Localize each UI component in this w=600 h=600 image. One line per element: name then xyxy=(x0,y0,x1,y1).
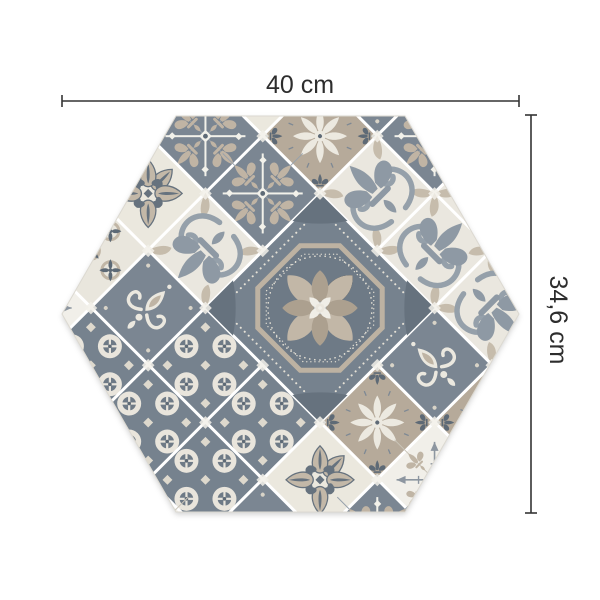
grout-corner-accent xyxy=(85,416,98,429)
grout-corner-accent xyxy=(371,15,384,28)
tile-motif-scroll xyxy=(377,536,493,600)
width-dimension: 40 cm xyxy=(62,71,519,107)
tile-motif-crossfleur xyxy=(584,171,600,331)
tile-motif-circles xyxy=(406,451,578,600)
grout-corner-accent xyxy=(428,531,441,544)
tile-motif-crossfleur xyxy=(355,0,515,102)
tile-motif-compass xyxy=(0,171,56,331)
grout-corner-accent xyxy=(27,244,40,257)
grout-corner-accent xyxy=(428,73,441,86)
height-label: 34,6 cm xyxy=(544,276,572,365)
grout-corner-accent xyxy=(485,473,498,486)
grout-corner-accent xyxy=(256,15,269,28)
tile-motif-quatrefoil xyxy=(144,533,266,600)
grout-corner-accent xyxy=(485,244,498,257)
grout-corner-accent xyxy=(199,531,212,544)
tile-motif-circles xyxy=(578,279,600,451)
grout-corner-accent xyxy=(199,73,212,86)
tile-motif-tulip xyxy=(538,355,600,491)
grout-corner-accent xyxy=(543,416,556,429)
tile-motif-compass xyxy=(469,400,600,560)
tile-motif-tulip xyxy=(309,0,445,32)
grout-corner-accent xyxy=(485,130,498,143)
tile-motif-quatrefoil xyxy=(259,533,381,600)
tile-motif-circles xyxy=(0,279,62,451)
tile-motif-rosette xyxy=(428,15,556,143)
height-dimension: 34,6 cm xyxy=(525,115,572,513)
grout-corner-accent xyxy=(371,588,384,600)
tile-motif-tulip xyxy=(0,125,102,261)
tile-motif-damask xyxy=(491,78,600,194)
grout-corner-accent xyxy=(314,531,327,544)
grout-corner-accent xyxy=(142,473,155,486)
grout-corner-accent xyxy=(27,359,40,372)
tile-motif-quatrefoil xyxy=(144,0,266,83)
tile-motif-rosette xyxy=(27,72,155,200)
grout-corner-accent xyxy=(142,130,155,143)
product-dimension-image: 40 cm 34,6 cm xyxy=(0,0,600,600)
tile-motif-quatrefoil xyxy=(545,132,600,254)
tile-motif-crossfleur xyxy=(183,572,343,600)
grout-corner-accent xyxy=(256,588,269,600)
width-label: 40 cm xyxy=(266,71,334,99)
tile-dimension-diagram: 40 cm 34,6 cm xyxy=(0,0,600,600)
grout-corner-accent xyxy=(85,187,98,200)
grout-corner-accent xyxy=(543,187,556,200)
tile-motif-rosette xyxy=(313,588,441,600)
tile-motif-rosette xyxy=(199,0,327,28)
tile-motif-rosette xyxy=(0,359,98,487)
